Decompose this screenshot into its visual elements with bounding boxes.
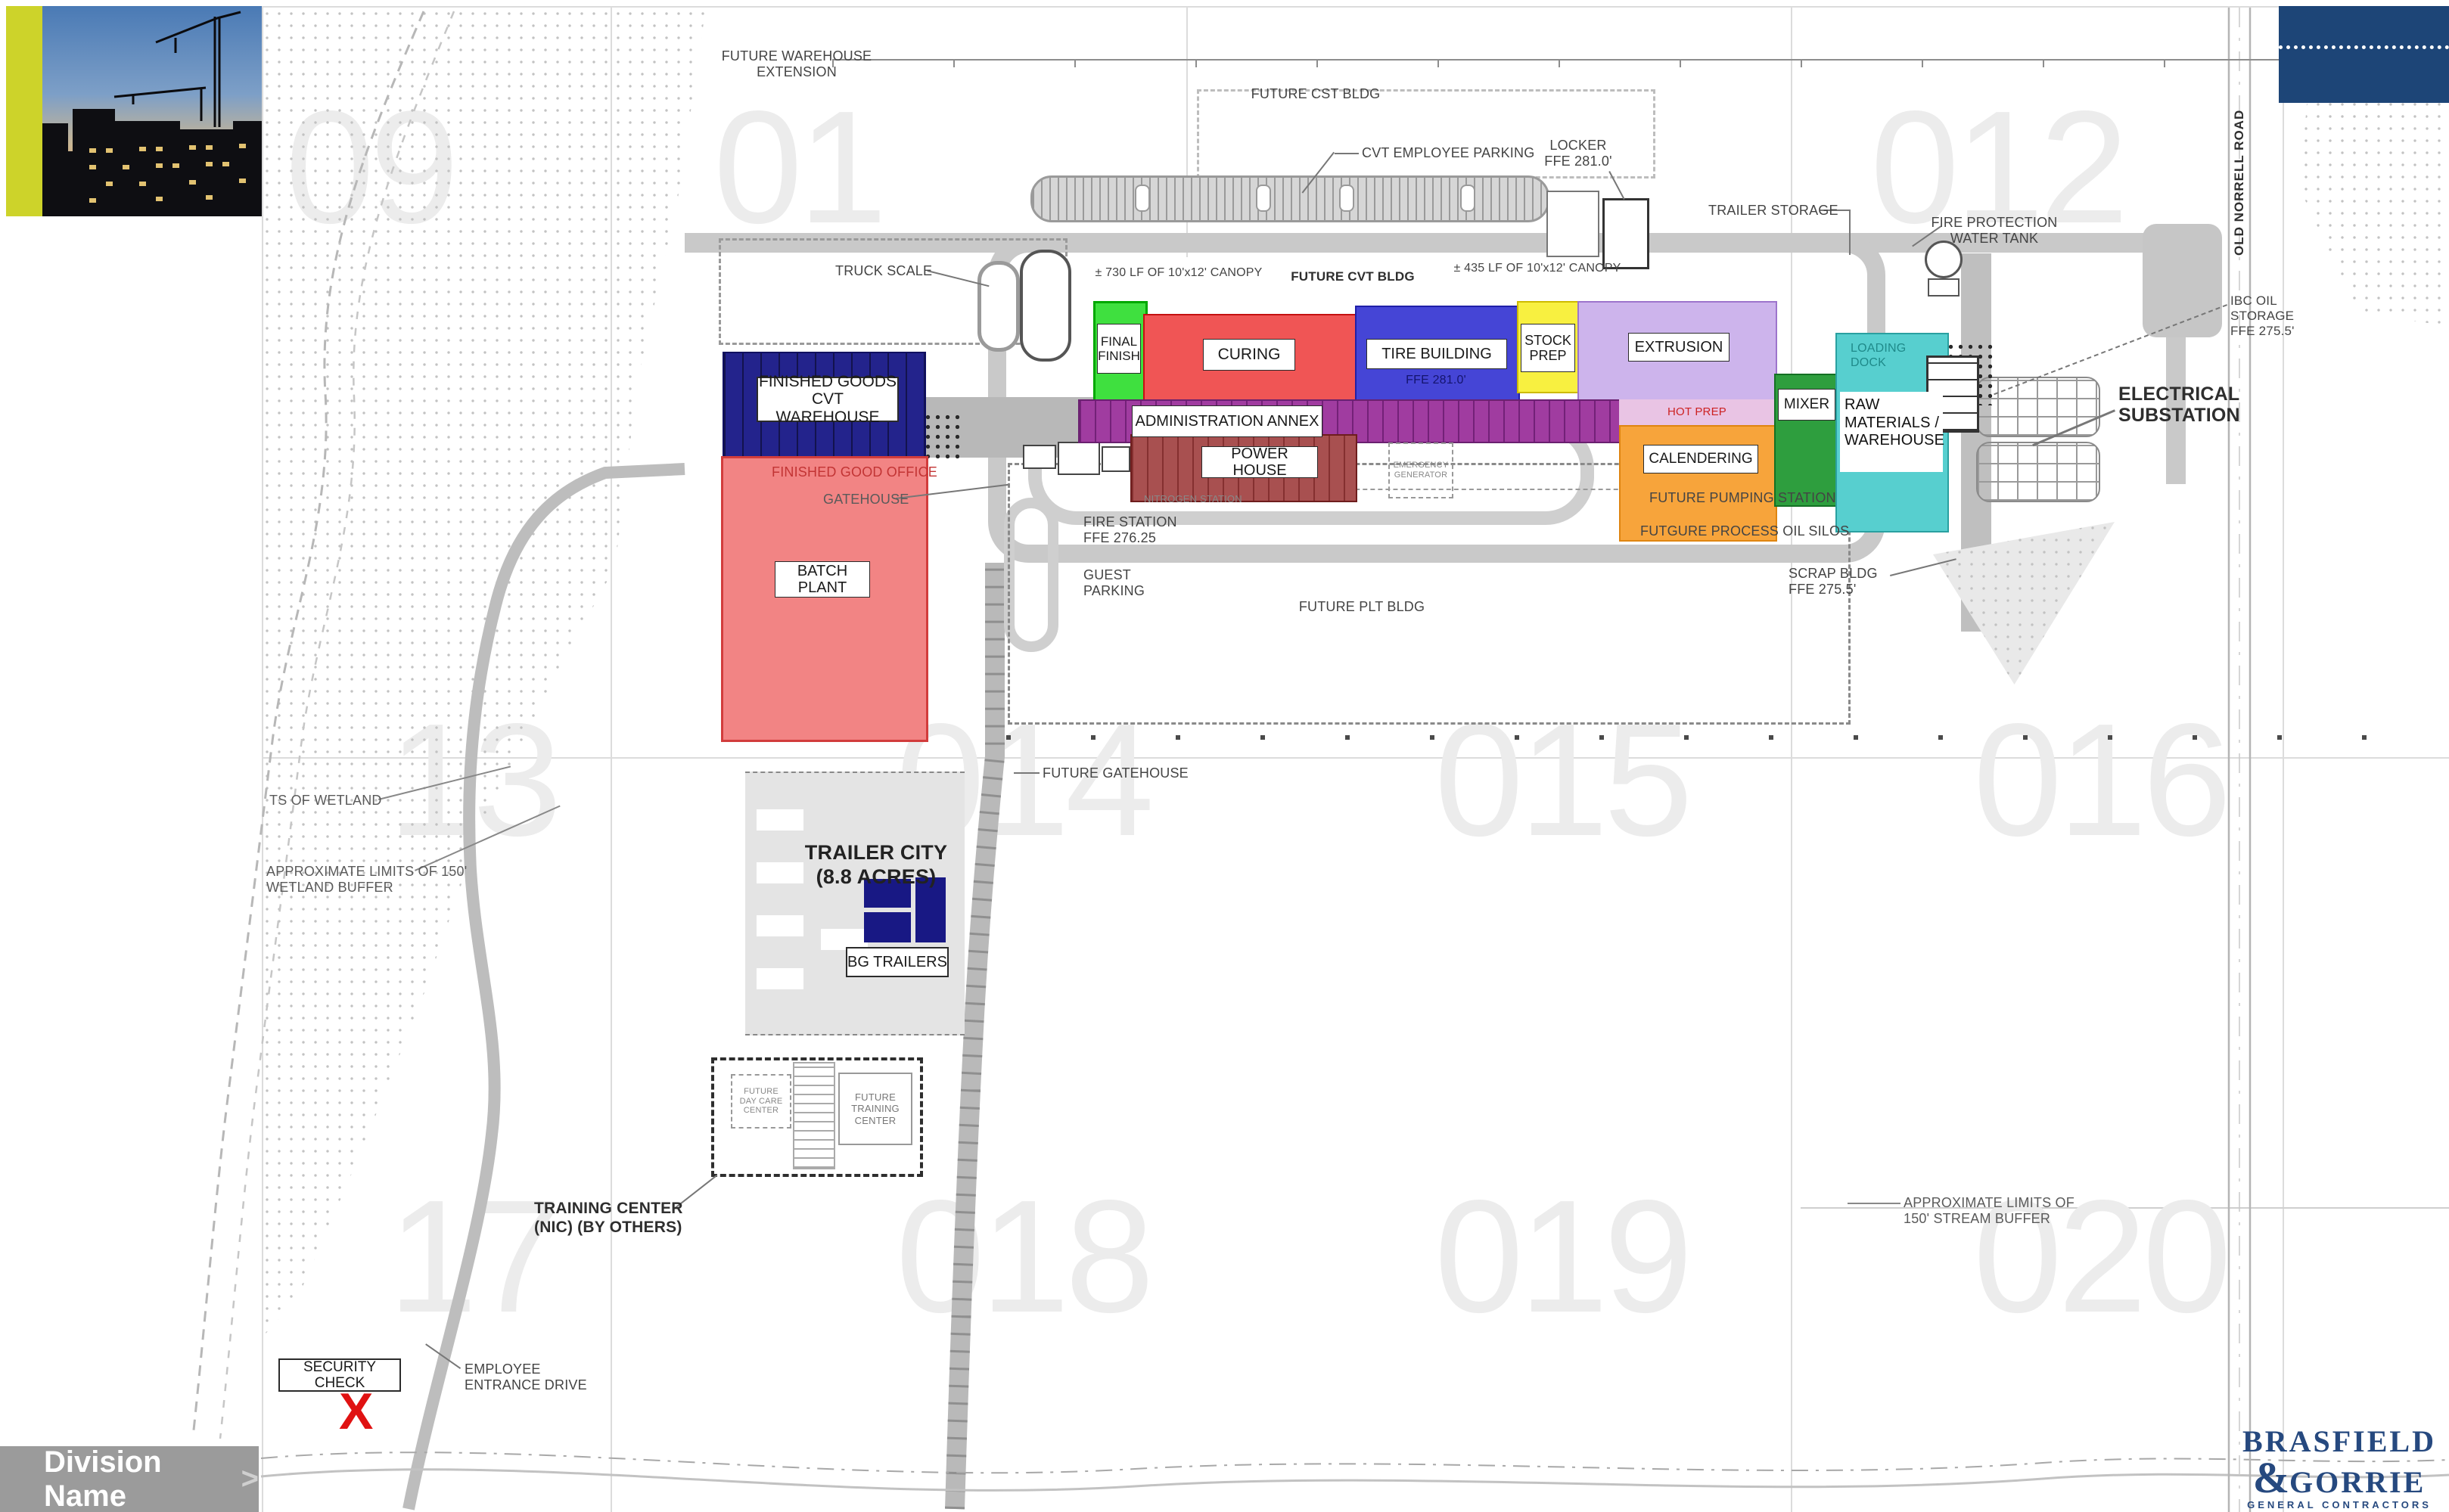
future-cst-bldg-label: FUTURE CST BLDG bbox=[1251, 86, 1381, 102]
gatehouse-label: GATEHOUSE bbox=[823, 492, 909, 508]
parking-island bbox=[1460, 185, 1475, 212]
ibc-oil-label: IBC OIL STORAGE FFE 275.5' bbox=[2230, 293, 2295, 339]
brand-block-divider bbox=[2279, 45, 2449, 49]
leader-line bbox=[1849, 210, 1851, 255]
tire-ffe-label: FFE 281.0' bbox=[1406, 374, 1466, 388]
support-structure bbox=[1546, 191, 1599, 257]
future-plt-bldg-label: FUTURE PLT BLDG bbox=[1299, 599, 1425, 615]
canopy-435-label: ± 435 LF OF 10'x12' CANOPY bbox=[1453, 262, 1621, 276]
scrap-bldg-label: SCRAP BLDG FFE 275.5' bbox=[1789, 566, 1878, 598]
parking-island bbox=[1135, 185, 1150, 212]
admin-annex-label: ADMINISTRATION ANNEX bbox=[1132, 405, 1322, 437]
fire-station-label: FIRE STATION FFE 276.25 bbox=[1083, 514, 1177, 546]
roads-layer bbox=[0, 0, 2449, 1512]
future-cvt-bldg-label: FUTURE CVT BLDG bbox=[1291, 269, 1415, 284]
tire-building-label: TIRE BUILDING bbox=[1366, 339, 1507, 369]
trailer-stall bbox=[757, 809, 803, 831]
calendering-label: CALENDERING bbox=[1643, 445, 1758, 473]
stock-prep-label: STOCK PREP bbox=[1521, 324, 1575, 372]
security-x-marker: X bbox=[339, 1381, 374, 1442]
future-gatehouse-label: FUTURE GATEHOUSE bbox=[1043, 765, 1189, 781]
truck-scale-pad bbox=[1020, 250, 1071, 362]
locker-building bbox=[1602, 198, 1649, 269]
future-day-care-label: FUTURE DAY CARE CENTER bbox=[740, 1087, 783, 1116]
substation-equipment bbox=[1976, 377, 2100, 437]
future-warehouse-extension-label: FUTURE WAREHOUSE EXTENSION bbox=[722, 48, 872, 80]
trailer-stall bbox=[757, 862, 803, 883]
raw-materials-label: RAW MATERIALS / WAREHOUSE bbox=[1845, 396, 1944, 450]
electrical-substation-label: ELECTRICAL SUBSTATION bbox=[2118, 384, 2240, 426]
guest-parking-label: GUEST PARKING bbox=[1083, 567, 1145, 599]
dock-doors bbox=[923, 412, 961, 459]
fire-protection-label: FIRE PROTECTION WATER TANK bbox=[1931, 215, 2057, 247]
brand-block bbox=[2279, 6, 2449, 103]
trailer-storage-label: TRAILER STORAGE bbox=[1708, 203, 1838, 219]
dimension-line bbox=[832, 59, 2444, 67]
future-training-box: FUTURE TRAINING CENTER bbox=[838, 1073, 912, 1145]
loading-dock-label: LOADING DOCK bbox=[1851, 342, 1906, 371]
bg-trailers-label: BG TRAILERS bbox=[846, 947, 949, 977]
accent-bar bbox=[6, 6, 42, 216]
emergency-generator-label: EMERGENCY GENERATOR bbox=[1394, 461, 1449, 480]
final-finish-label: FINAL FINISH bbox=[1097, 324, 1141, 374]
bg-trailer-block bbox=[864, 912, 911, 942]
gatehouse-structure bbox=[1058, 442, 1100, 475]
batch-plant-label: BATCH PLANT bbox=[775, 561, 870, 598]
logo-name-top: BRASFIELD bbox=[2233, 1427, 2445, 1457]
slide-canvas: Division Name > BRASFIELD &GORRIE GENERA… bbox=[0, 0, 2449, 1512]
nitrogen-station-label: NITROGEN STATION bbox=[1144, 493, 1242, 505]
future-pumping-station-label: FUTURE PUMPING STATION bbox=[1649, 490, 1836, 506]
logo-tagline: GENERAL CONTRACTORS bbox=[2233, 1499, 2445, 1510]
brasfield-gorrie-logo: BRASFIELD &GORRIE GENERAL CONTRACTORS bbox=[2233, 1427, 2445, 1510]
curing-label: CURING bbox=[1203, 339, 1295, 371]
parking-island bbox=[1256, 185, 1271, 212]
training-center-nic-label: TRAINING CENTER (NIC) (BY OTHERS) bbox=[534, 1200, 683, 1237]
limits-of-wetland-label: TS OF WETLAND bbox=[269, 793, 382, 809]
training-parking-rows bbox=[793, 1062, 835, 1169]
water-tank-pad bbox=[1928, 278, 1960, 297]
mixer-label: MIXER bbox=[1778, 389, 1835, 421]
stream-buffer-label: APPROXIMATE LIMITS OF 150' STREAM BUFFER bbox=[1904, 1195, 2075, 1227]
leader-line bbox=[1335, 153, 1359, 154]
logo-ampersand: & bbox=[2253, 1453, 2289, 1502]
employee-entrance-label: EMPLOYEE ENTRANCE DRIVE bbox=[465, 1361, 587, 1393]
day-care-box: FUTURE DAY CARE CENTER bbox=[731, 1074, 791, 1129]
parking-island bbox=[1339, 185, 1354, 212]
construction-photo bbox=[42, 6, 262, 216]
extrusion-label: EXTRUSION bbox=[1628, 333, 1730, 362]
cvt-employee-parking-label: CVT EMPLOYEE PARKING bbox=[1362, 145, 1534, 161]
leader-line bbox=[1848, 1203, 1900, 1204]
truck-scale-oval bbox=[977, 261, 1020, 352]
leader-line bbox=[1014, 772, 1040, 774]
gatehouse-structure bbox=[1102, 446, 1130, 472]
old-norrell-road-label: OLD NORRELL ROAD bbox=[2232, 110, 2247, 256]
future-training-label: FUTURE TRAINING CENTER bbox=[851, 1091, 900, 1126]
trailer-city-label: TRAILER CITY (8.8 ACRES) bbox=[805, 841, 947, 890]
division-bar: Division Name > bbox=[0, 1446, 259, 1512]
truck-scale-label: TRUCK SCALE bbox=[835, 263, 932, 279]
logo-name-bottom: GORRIE bbox=[2289, 1465, 2426, 1499]
division-name-label: Division Name bbox=[44, 1445, 234, 1512]
trailer-stall bbox=[757, 915, 803, 936]
locker-label: LOCKER FFE 281.0' bbox=[1544, 138, 1611, 169]
gatehouse-structure bbox=[1023, 445, 1056, 469]
future-process-oil-silos-label: FUTGURE PROCESS OIL SILOS bbox=[1640, 523, 1849, 539]
substation-equipment bbox=[1976, 442, 2100, 502]
finished-goods-label: FINISHED GOODS CVT WAREHOUSE bbox=[757, 377, 899, 422]
property-dotted-line bbox=[1006, 735, 2444, 740]
emergency-generator-pad: EMERGENCY GENERATOR bbox=[1388, 442, 1453, 498]
hot-prep-label: HOT PREP bbox=[1667, 405, 1726, 419]
power-house-label: POWER HOUSE bbox=[1201, 446, 1318, 478]
division-chevron: > bbox=[241, 1462, 259, 1496]
wetland-buffer-label: APPROXIMATE LIMITS OF 150' WETLAND BUFFE… bbox=[266, 864, 467, 896]
trailer-stall bbox=[757, 968, 803, 989]
finished-good-office-label: FINISHED GOOD OFFICE bbox=[772, 464, 937, 480]
canopy-730-label: ± 730 LF OF 10'x12' CANOPY bbox=[1095, 266, 1262, 281]
